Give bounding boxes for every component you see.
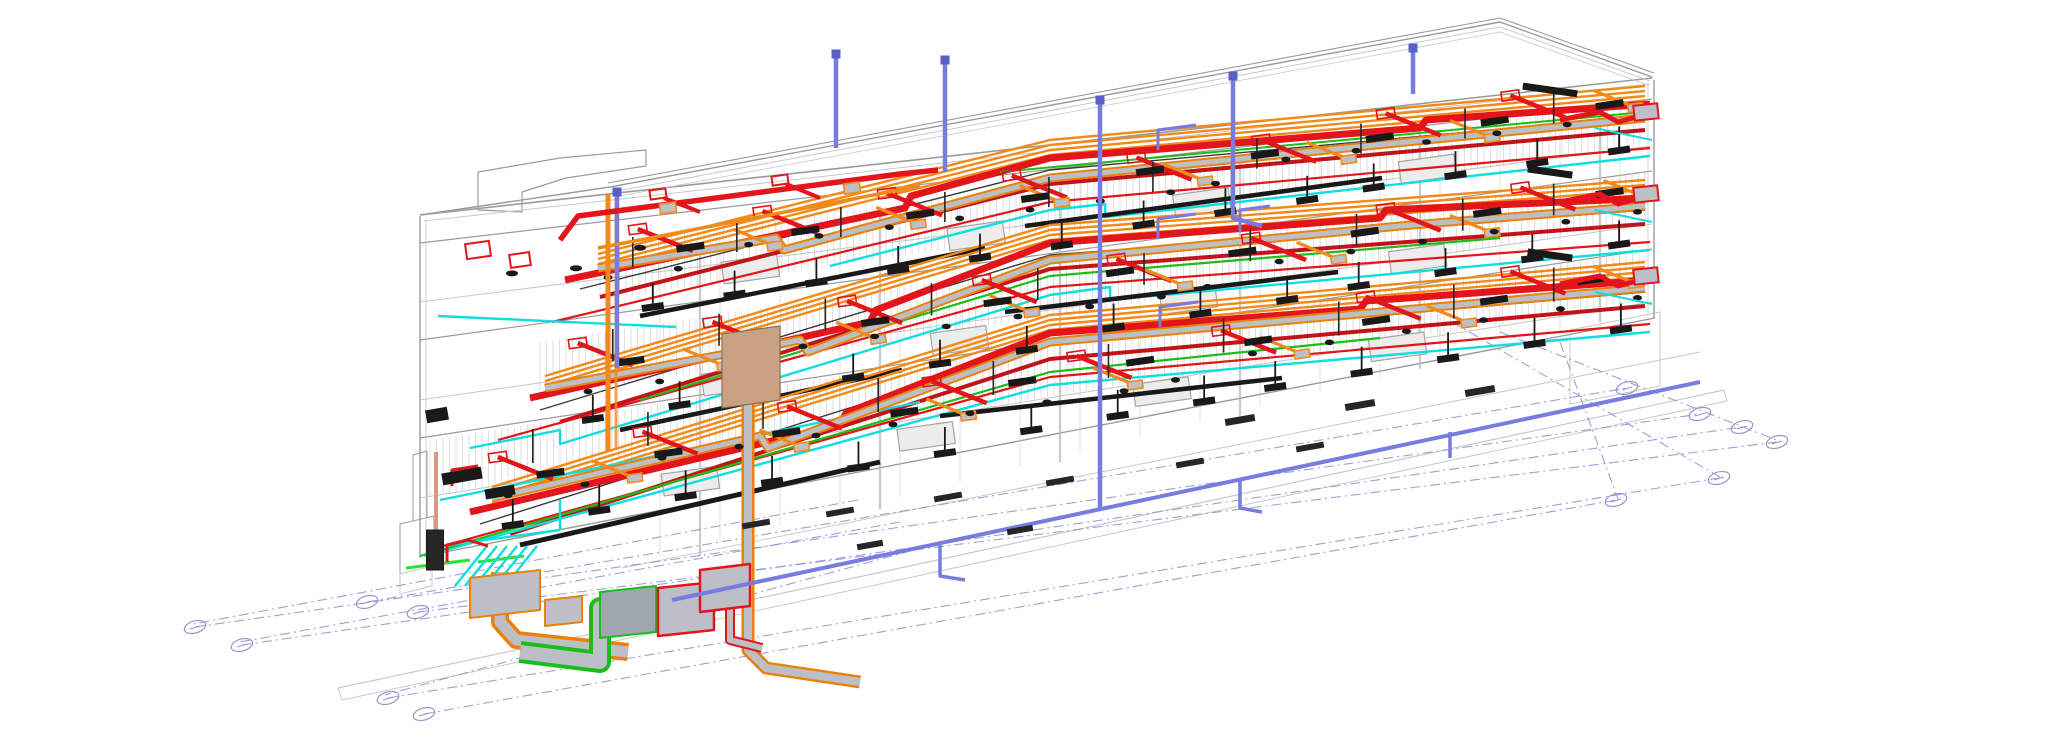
bim-model-viewport[interactable]: [0, 0, 2048, 740]
bim-3d-isometric-view[interactable]: [0, 0, 2048, 740]
